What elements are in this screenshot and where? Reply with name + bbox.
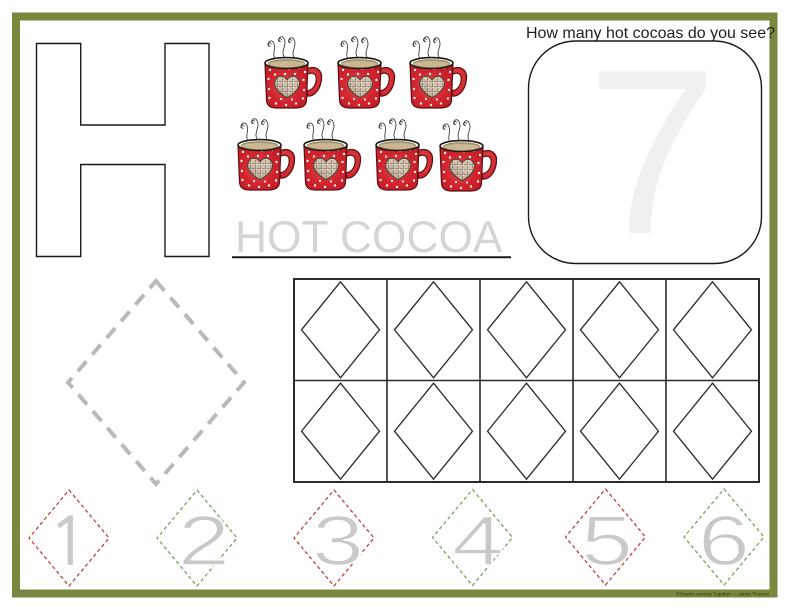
svg-text:3: 3 xyxy=(312,501,364,580)
svg-text:4: 4 xyxy=(452,501,504,580)
svg-text:5: 5 xyxy=(581,501,633,580)
svg-text:HOT COCOA: HOT COCOA xyxy=(235,213,503,262)
svg-text:7: 7 xyxy=(587,20,718,283)
svg-text:6: 6 xyxy=(698,501,750,580)
svg-text:©SimplyLearning Together —: ©SimplyLearning Together — Jamie Thomas xyxy=(676,591,770,597)
svg-text:2: 2 xyxy=(178,501,230,580)
